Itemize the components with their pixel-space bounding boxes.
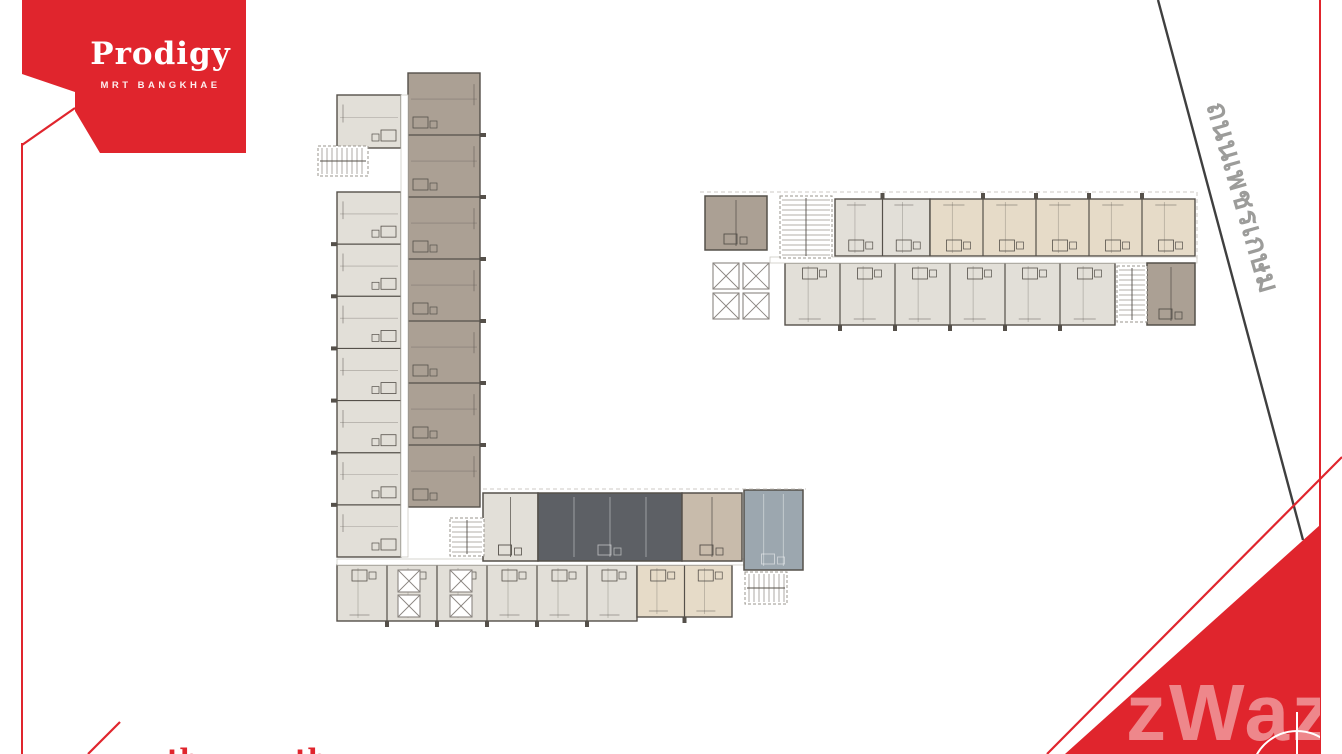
corner-unit-bluegrey [744, 490, 803, 570]
stair-b-west [780, 196, 832, 258]
building-a-bottom-light [337, 565, 637, 627]
corridor [401, 95, 408, 557]
bottom-left-diagonal-line [88, 722, 120, 754]
building-b-upper-tan [930, 193, 1195, 256]
building-a-right-column [408, 73, 486, 507]
logo-subtitle: MRT BANGKHAE [75, 80, 246, 91]
building-b-upper-grey [835, 193, 930, 256]
stair-a-corner [450, 518, 484, 556]
left-corner-band [22, 0, 75, 92]
lift-bank-b [713, 263, 769, 319]
building-b-lower [785, 263, 1115, 331]
building-a-left-column-top [337, 95, 401, 148]
logo-title: Prodigy [75, 36, 246, 72]
watermark-text: zWaz [1126, 668, 1335, 754]
stair-b-east [1117, 266, 1147, 322]
floor-superscript-2: th [295, 744, 327, 754]
project-logo: Prodigy MRT BANGKHAE [75, 0, 246, 153]
corner-unit-slate [538, 493, 682, 561]
corner-unit-mocha [682, 493, 742, 561]
floor-plans [318, 73, 1197, 627]
floor-superscript-1: th [167, 744, 199, 754]
corner-unit-light [483, 493, 538, 561]
brochure-page: zWaz Prodigy MRT BANGKHAE ถนนเพชรเกษม th… [0, 0, 1342, 754]
left-diagonal-line [22, 108, 75, 145]
stair-a-east [745, 572, 787, 604]
corridor [770, 257, 1197, 263]
building-a-left-column [331, 192, 401, 557]
building-b-left-end [705, 196, 767, 250]
building-a-bottom-tan [637, 565, 732, 623]
building-b-right-end [1147, 263, 1195, 325]
stair-a-west [318, 146, 368, 176]
